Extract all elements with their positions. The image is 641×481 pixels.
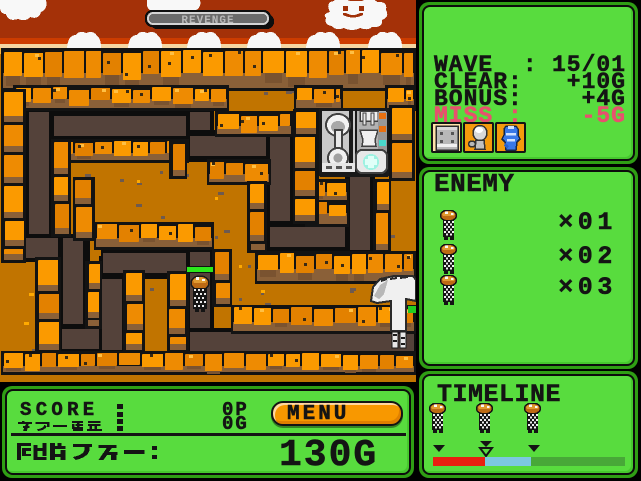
svg-text:REVENGE: REVENGE bbox=[181, 15, 234, 27]
